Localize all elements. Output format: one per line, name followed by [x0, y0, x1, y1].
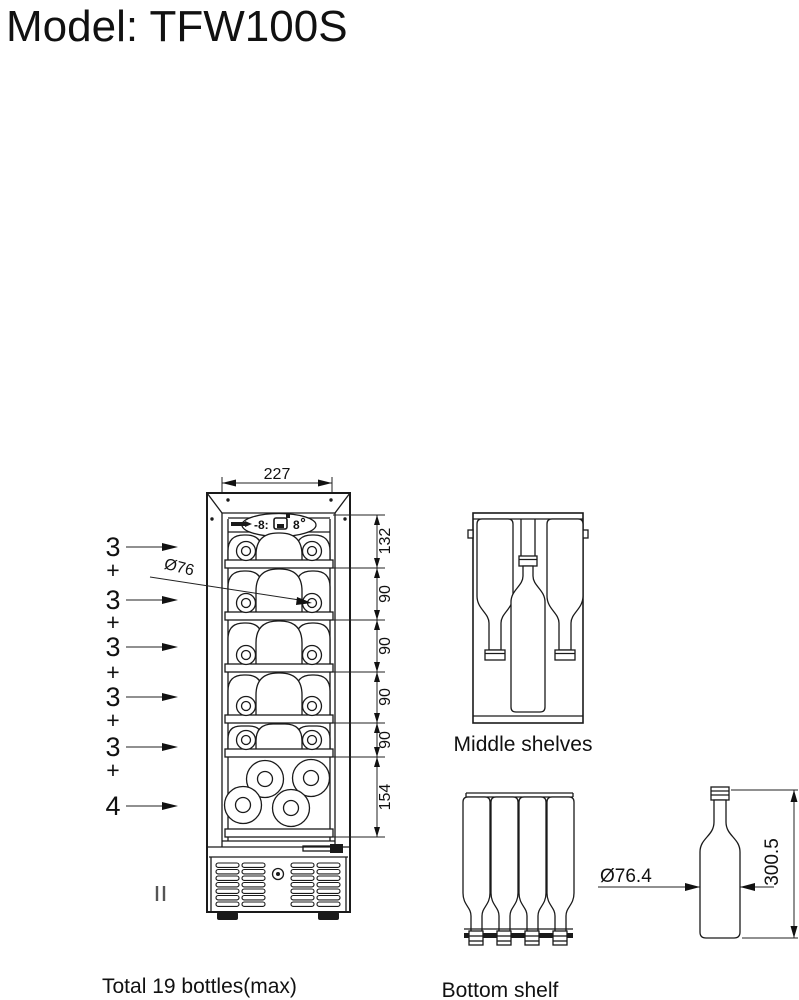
plus-sign: +	[106, 757, 119, 783]
shelf-board	[225, 664, 333, 672]
right-dim-label: 90	[377, 585, 394, 603]
middle-shelves-caption: Middle shelves	[454, 733, 593, 756]
bottle-height-dimension: 300.5	[731, 790, 798, 938]
right-dim-label: 90	[377, 688, 394, 706]
screw-dot	[329, 498, 332, 501]
shelf-board	[225, 560, 333, 568]
bottom-compartment	[225, 760, 334, 838]
shelf-count-label: 3	[105, 632, 120, 662]
right-dim-label: 132	[377, 528, 394, 555]
shelf-tab	[468, 530, 473, 538]
bottle-diameter-dimension: Ø76.4	[598, 866, 774, 891]
screw-dot	[343, 517, 346, 520]
right-dim-label: 90	[377, 637, 394, 655]
total-bottles-note: Total 19 bottles(max)	[102, 975, 297, 998]
plus-sign: +	[106, 707, 119, 733]
dim-label-bottle-diameter: Ø76.4	[600, 866, 652, 887]
shelf-board	[225, 715, 333, 723]
dim-label-width: 227	[264, 466, 291, 483]
dim-label-bottle-dia: Ø76	[162, 556, 196, 580]
shelf-tab	[583, 530, 588, 538]
shelf-count-annotations: 3 + 3 + 3 + 3 + 3 + 4	[105, 532, 178, 821]
bottle-figure: Ø76.4 300.5	[598, 787, 798, 938]
shelf-rows	[225, 533, 333, 757]
right-dimension-chain: 132 90 90 90 90 154	[333, 515, 394, 837]
bottom-shelf-caption: Bottom shelf	[442, 979, 559, 1000]
plus-sign: +	[106, 557, 119, 583]
right-dim-label: 90	[377, 731, 394, 749]
technical-drawing-page: Model: TFW100S 227	[0, 0, 799, 1000]
top-width-dimension: 227	[222, 466, 332, 492]
panel-display-temp: -8:	[254, 518, 269, 532]
shelf-board	[225, 749, 333, 757]
brand-mark	[231, 522, 245, 526]
shelf-count-label: 4	[105, 791, 120, 821]
break-mark	[157, 886, 164, 901]
bottom-shelf-figure: Bottom shelf	[442, 793, 574, 1000]
dim-label-bottle-height: 300.5	[762, 838, 783, 886]
screw-dot	[226, 498, 229, 501]
feet	[217, 912, 339, 920]
drawing-canvas: 227	[0, 0, 799, 1000]
indicator-light	[273, 869, 284, 880]
door-handle	[303, 844, 343, 853]
shelf-board	[225, 612, 333, 620]
front-view-drawing: 227	[105, 466, 394, 920]
middle-shelves-figure: Middle shelves	[454, 513, 593, 756]
right-dim-label: 154	[377, 784, 394, 811]
panel-display-mode: 8	[293, 518, 300, 532]
bottom-shelf-board	[225, 829, 333, 837]
screw-dot	[210, 517, 213, 520]
